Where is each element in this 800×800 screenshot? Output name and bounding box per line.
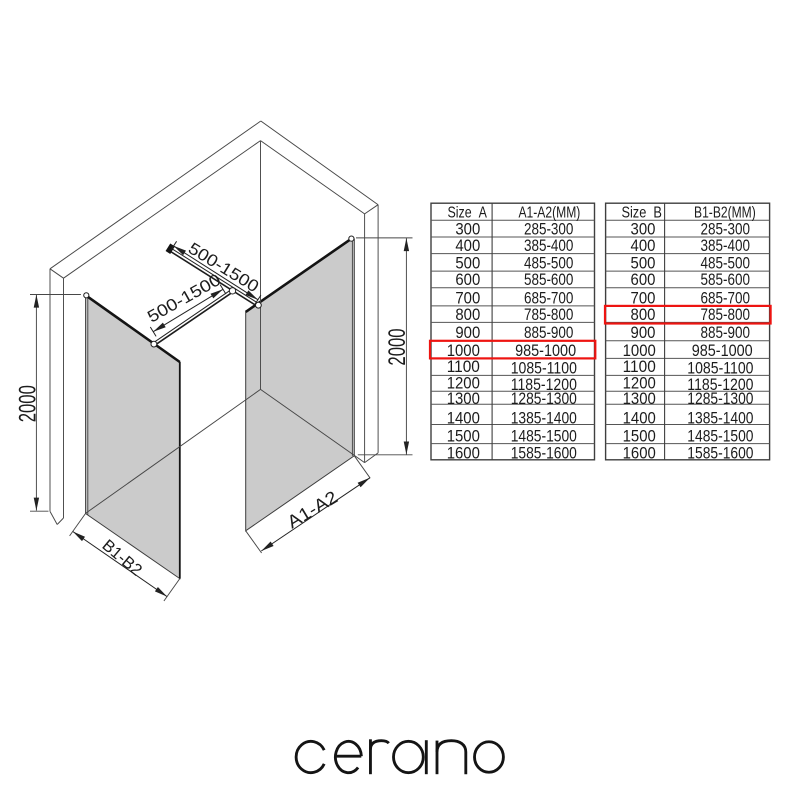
svg-text:885-900: 885-900 <box>524 324 574 342</box>
svg-text:1400: 1400 <box>623 409 656 427</box>
svg-text:285-300: 285-300 <box>524 220 574 238</box>
svg-text:400: 400 <box>455 237 480 255</box>
svg-text:700: 700 <box>631 289 656 307</box>
svg-text:500: 500 <box>631 255 656 273</box>
svg-text:1600: 1600 <box>447 445 480 463</box>
svg-text:785-800: 785-800 <box>701 306 751 324</box>
svg-text:500: 500 <box>455 255 480 273</box>
svg-text:300: 300 <box>455 220 480 238</box>
svg-text:1385-1400: 1385-1400 <box>687 409 753 427</box>
svg-text:685-700: 685-700 <box>701 289 751 307</box>
svg-text:985-1000: 985-1000 <box>515 342 576 360</box>
svg-text:1100: 1100 <box>623 358 656 376</box>
svg-text:1400: 1400 <box>447 409 480 427</box>
svg-text:585-600: 585-600 <box>524 271 574 289</box>
svg-text:1500: 1500 <box>623 428 656 446</box>
svg-text:500-1500: 500-1500 <box>144 270 224 326</box>
svg-text:1300: 1300 <box>447 390 480 408</box>
svg-text:Size A: Size A <box>448 204 488 221</box>
svg-text:1085-1100: 1085-1100 <box>511 359 577 377</box>
svg-text:600: 600 <box>631 271 656 289</box>
svg-text:285-300: 285-300 <box>701 220 751 238</box>
svg-text:1385-1400: 1385-1400 <box>511 409 577 427</box>
svg-text:1585-1600: 1585-1600 <box>511 445 577 463</box>
svg-text:900: 900 <box>631 324 656 342</box>
svg-text:1285-1300: 1285-1300 <box>687 390 753 408</box>
svg-text:A1-A2(MM): A1-A2(MM) <box>518 204 580 221</box>
svg-text:485-500: 485-500 <box>701 255 751 273</box>
svg-text:1485-1500: 1485-1500 <box>511 428 577 446</box>
svg-text:785-800: 785-800 <box>524 306 574 324</box>
svg-text:1300: 1300 <box>623 390 656 408</box>
svg-text:900: 900 <box>455 324 480 342</box>
svg-text:2000: 2000 <box>14 385 41 422</box>
svg-text:B1-B2(MM): B1-B2(MM) <box>694 204 756 221</box>
svg-text:885-900: 885-900 <box>701 324 751 342</box>
svg-text:385-400: 385-400 <box>524 237 574 255</box>
svg-text:400: 400 <box>631 237 656 255</box>
svg-text:685-700: 685-700 <box>524 289 574 307</box>
svg-text:1585-1600: 1585-1600 <box>687 445 753 463</box>
svg-text:385-400: 385-400 <box>701 237 751 255</box>
svg-text:485-500: 485-500 <box>524 255 574 273</box>
svg-text:Size B: Size B <box>621 204 662 221</box>
svg-text:800: 800 <box>455 306 480 324</box>
svg-text:600: 600 <box>455 271 480 289</box>
svg-text:1285-1300: 1285-1300 <box>511 390 577 408</box>
svg-text:700: 700 <box>455 289 480 307</box>
svg-text:985-1000: 985-1000 <box>692 342 753 360</box>
svg-text:1100: 1100 <box>447 358 480 376</box>
svg-text:2000: 2000 <box>384 328 411 365</box>
svg-text:585-600: 585-600 <box>701 271 751 289</box>
svg-text:1485-1500: 1485-1500 <box>687 428 753 446</box>
svg-text:1500: 1500 <box>447 428 480 446</box>
svg-text:300: 300 <box>631 220 656 238</box>
svg-text:1600: 1600 <box>623 445 656 463</box>
svg-text:1085-1100: 1085-1100 <box>687 359 753 377</box>
svg-text:800: 800 <box>631 306 656 324</box>
